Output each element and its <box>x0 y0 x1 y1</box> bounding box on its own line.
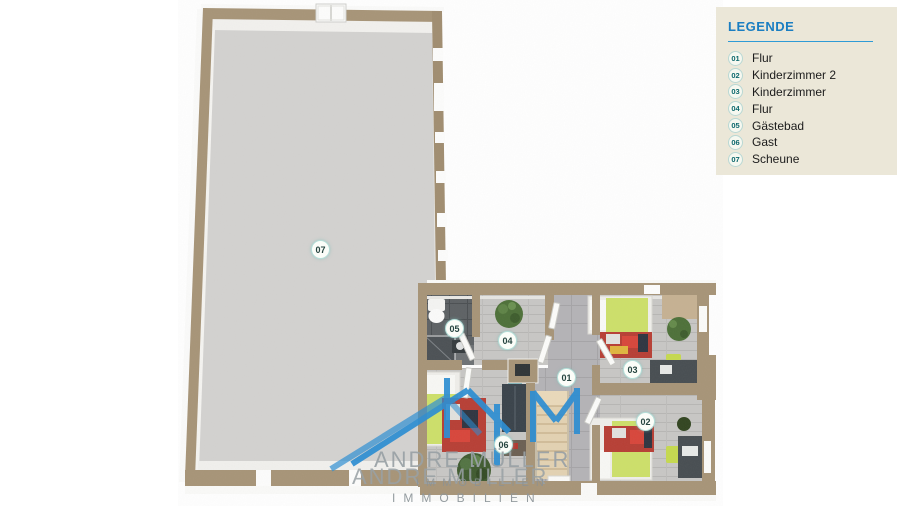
legend-label: Scheune <box>752 152 799 166</box>
legend-item-flur-2: 04 Flur <box>728 100 897 117</box>
legend-item-gaestebad: 05 Gästebad <box>728 117 897 134</box>
floorplan-canvas: 07 05 04 01 03 02 06 ANDRE MÜLLER ANDRE … <box>0 0 900 506</box>
room-badge-05: 05 <box>445 319 464 338</box>
legend-label: Kinderzimmer <box>752 85 826 99</box>
room-badge-04: 04 <box>498 331 517 350</box>
legend-item-scheune: 07 Scheune <box>728 151 897 168</box>
legend-badge: 05 <box>728 118 743 133</box>
legend-item-flur: 01 Flur <box>728 50 897 67</box>
legend-panel: LEGENDE 01 Flur 02 Kinderzimmer 2 03 Kin… <box>716 7 897 175</box>
legend-label: Flur <box>752 102 773 116</box>
legend-badge: 03 <box>728 84 743 99</box>
legend-badge: 01 <box>728 51 743 66</box>
room-badge-06: 06 <box>494 435 513 454</box>
legend-item-kinderzimmer-2: 02 Kinderzimmer 2 <box>728 67 897 84</box>
legend-badge: 04 <box>728 101 743 116</box>
room-badge-03: 03 <box>623 360 642 379</box>
legend-divider <box>728 41 873 42</box>
room-badge-01: 01 <box>557 368 576 387</box>
legend-title: LEGENDE <box>728 19 885 34</box>
legend-item-kinderzimmer: 03 Kinderzimmer <box>728 84 897 101</box>
room-badge-02: 02 <box>636 412 655 431</box>
legend-items: 01 Flur 02 Kinderzimmer 2 03 Kinderzimme… <box>728 50 897 168</box>
legend-badge: 02 <box>728 68 743 83</box>
legend-badge: 07 <box>728 152 743 167</box>
legend-label: Gästebad <box>752 119 804 133</box>
legend-label: Flur <box>752 51 773 65</box>
legend-label: Kinderzimmer 2 <box>752 68 836 82</box>
legend-badge: 06 <box>728 135 743 150</box>
legend-item-gast: 06 Gast <box>728 134 897 151</box>
legend-label: Gast <box>752 135 777 149</box>
room-badge-07: 07 <box>311 240 330 259</box>
